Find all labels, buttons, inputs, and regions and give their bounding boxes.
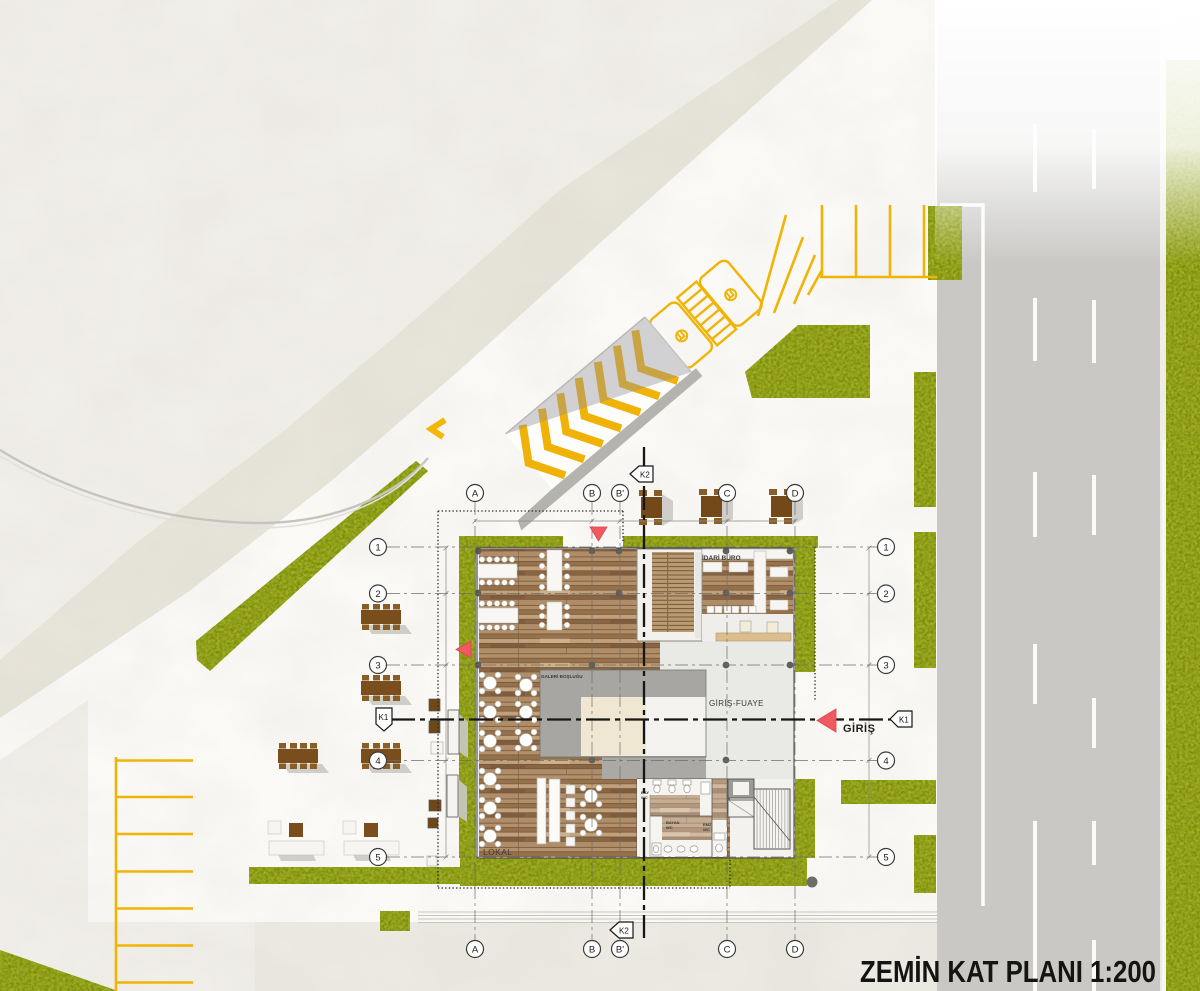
svg-text:B': B' bbox=[616, 488, 624, 499]
svg-text:3: 3 bbox=[375, 660, 380, 671]
svg-text:D: D bbox=[792, 944, 799, 955]
svg-text:LOKAL: LOKAL bbox=[483, 847, 512, 857]
svg-text:K1: K1 bbox=[899, 716, 909, 725]
svg-text:1: 1 bbox=[883, 542, 888, 553]
svg-text:A: A bbox=[472, 488, 479, 499]
svg-text:4: 4 bbox=[375, 756, 380, 767]
svg-text:İDARİ BÜRO: İDARİ BÜRO bbox=[702, 553, 741, 562]
svg-text:C: C bbox=[724, 488, 731, 499]
svg-text:5: 5 bbox=[883, 852, 888, 863]
svg-text:GALERİ BOŞLUĞU: GALERİ BOŞLUĞU bbox=[541, 672, 583, 679]
svg-text:2: 2 bbox=[883, 589, 888, 600]
svg-text:1: 1 bbox=[375, 542, 380, 553]
svg-text:GİRİŞ: GİRİŞ bbox=[843, 722, 875, 735]
svg-text:B': B' bbox=[616, 944, 624, 955]
svg-text:ZEMİN KAT PLANI 1:200: ZEMİN KAT PLANI 1:200 bbox=[860, 954, 1156, 989]
svg-text:K2: K2 bbox=[619, 927, 629, 936]
svg-text:K2: K2 bbox=[640, 471, 650, 480]
svg-text:C: C bbox=[724, 944, 731, 955]
svg-text:D: D bbox=[792, 488, 799, 499]
svg-text:GİRİŞ-FUAYE: GİRİŞ-FUAYE bbox=[709, 699, 764, 708]
svg-text:B: B bbox=[589, 944, 595, 955]
svg-text:WC: WC bbox=[703, 827, 710, 832]
svg-text:B: B bbox=[589, 488, 595, 499]
svg-text:4: 4 bbox=[883, 756, 888, 767]
svg-text:K1: K1 bbox=[379, 713, 389, 722]
svg-text:A: A bbox=[472, 944, 479, 955]
svg-text:5: 5 bbox=[375, 852, 380, 863]
svg-text:3: 3 bbox=[883, 660, 888, 671]
svg-text:2: 2 bbox=[375, 589, 380, 600]
svg-text:WC: WC bbox=[666, 825, 673, 830]
